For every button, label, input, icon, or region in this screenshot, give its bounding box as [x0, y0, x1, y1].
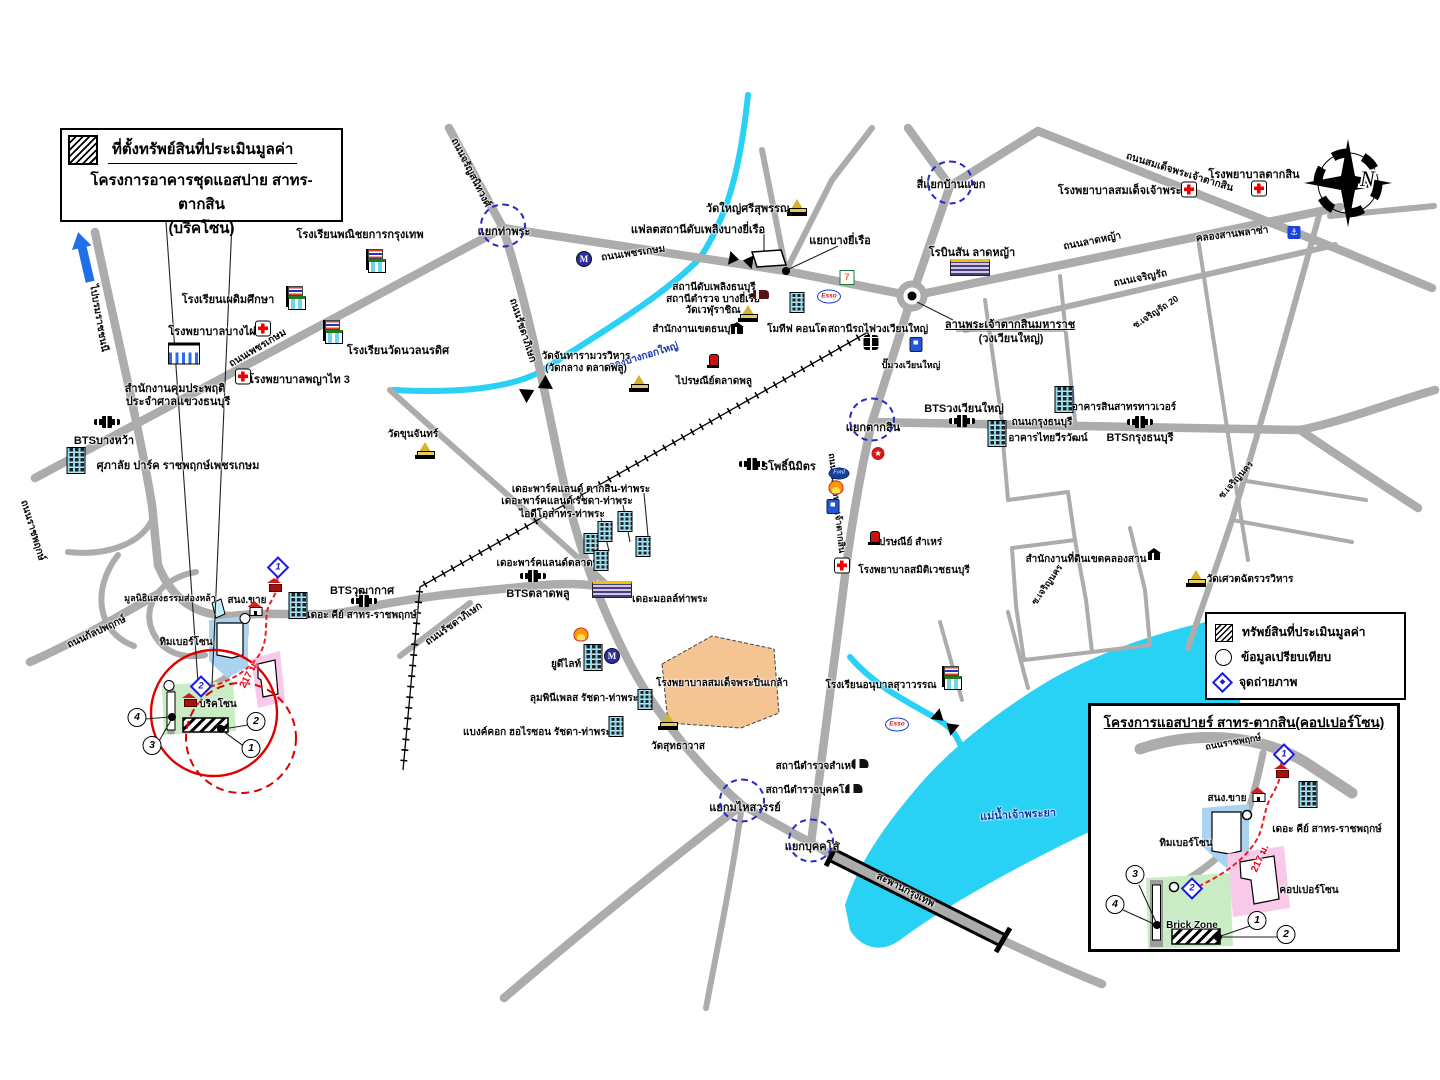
map-page: N ที่ตั้งทรัพย์สินที่ประเมินมูลค่า โครงก… [0, 0, 1440, 1080]
inset-map-canvas [0, 0, 1440, 1080]
